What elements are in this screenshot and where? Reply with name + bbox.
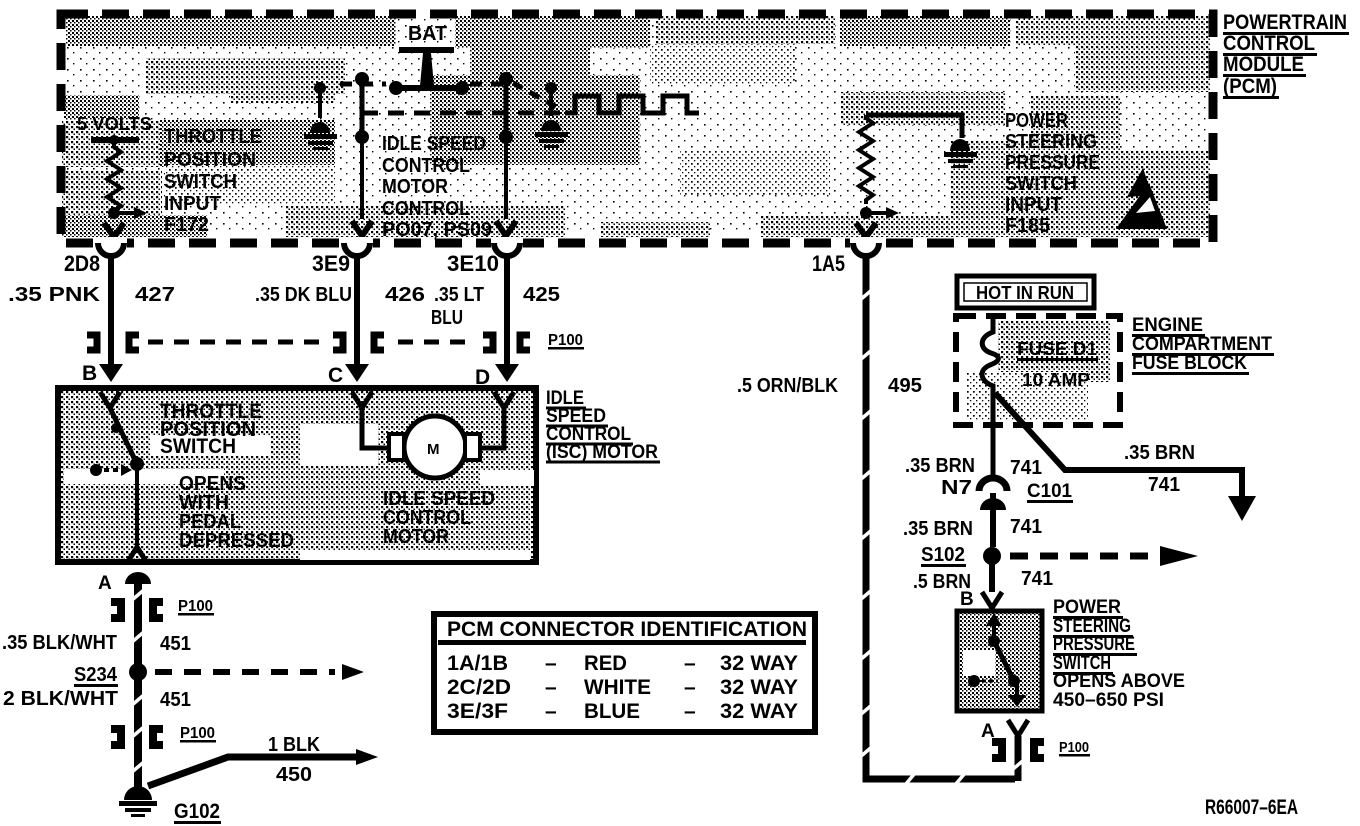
svg-text:CONTROL: CONTROL xyxy=(382,198,470,220)
svg-text:A: A xyxy=(98,573,112,594)
svg-text:10 AMP: 10 AMP xyxy=(1022,370,1090,390)
svg-text:BAT: BAT xyxy=(408,23,447,45)
svg-text:32 WAY: 32 WAY xyxy=(720,652,798,675)
svg-text:FUSE BLOCK: FUSE BLOCK xyxy=(1132,353,1247,374)
svg-text:MODULE: MODULE xyxy=(1223,53,1304,76)
svg-text:427: 427 xyxy=(135,284,175,306)
svg-text:COMPARTMENT: COMPARTMENT xyxy=(1132,334,1272,355)
svg-text:WHITE: WHITE xyxy=(584,676,651,699)
svg-text:–: – xyxy=(545,676,557,699)
svg-text:B: B xyxy=(960,589,974,610)
svg-text:FUSE D1: FUSE D1 xyxy=(1017,339,1097,359)
svg-text:BLU: BLU xyxy=(431,307,463,329)
svg-text:BLUE: BLUE xyxy=(584,700,640,723)
svg-text:.35 BLK/WHT: .35 BLK/WHT xyxy=(2,632,117,654)
svg-text:451: 451 xyxy=(160,689,191,711)
svg-text:1 BLK: 1 BLK xyxy=(268,734,320,756)
svg-text:IDLE SPEED: IDLE SPEED xyxy=(382,133,486,155)
svg-text:(PCM): (PCM) xyxy=(1223,75,1277,98)
svg-text:451: 451 xyxy=(160,633,191,655)
svg-text:STEERING: STEERING xyxy=(1005,131,1097,153)
svg-text:SWITCH: SWITCH xyxy=(1005,173,1077,195)
svg-text:1A/1B: 1A/1B xyxy=(447,652,508,675)
svg-text:B: B xyxy=(82,362,97,385)
svg-text:INPUT: INPUT xyxy=(164,193,221,215)
svg-text:CONTROL: CONTROL xyxy=(1223,32,1315,55)
svg-text:425: 425 xyxy=(523,284,560,306)
svg-text:741: 741 xyxy=(1010,516,1042,538)
svg-text:5 VOLTS: 5 VOLTS xyxy=(77,114,152,134)
svg-text:.35 PNK: .35 PNK xyxy=(8,284,101,306)
svg-text:HOT IN RUN: HOT IN RUN xyxy=(976,283,1074,303)
svg-text:C: C xyxy=(328,364,343,387)
svg-text:–: – xyxy=(684,652,696,675)
svg-text:741: 741 xyxy=(1021,568,1053,590)
svg-text:DEPRESSED: DEPRESSED xyxy=(179,530,294,552)
svg-text:G102: G102 xyxy=(174,800,220,823)
svg-text:.5 ORN/BLK: .5 ORN/BLK xyxy=(737,375,838,397)
svg-text:3E/3F: 3E/3F xyxy=(447,700,508,723)
svg-text:3E9: 3E9 xyxy=(312,251,350,276)
svg-text:P100: P100 xyxy=(180,725,215,742)
svg-text:495: 495 xyxy=(888,375,922,397)
svg-text:2C/2D: 2C/2D xyxy=(447,676,511,699)
svg-text:–: – xyxy=(545,700,557,723)
svg-text:PO07, PS09: PO07, PS09 xyxy=(382,219,492,241)
svg-text:P100: P100 xyxy=(1059,739,1089,756)
svg-text:MOTOR: MOTOR xyxy=(382,176,448,198)
svg-text:450–650 PSI: 450–650 PSI xyxy=(1053,690,1164,711)
svg-text:PRESSURE: PRESSURE xyxy=(1005,152,1100,174)
svg-text:32 WAY: 32 WAY xyxy=(720,700,798,723)
svg-text:R66007–6EA: R66007–6EA xyxy=(1205,796,1298,819)
svg-text:S102: S102 xyxy=(921,544,965,566)
svg-text:F185: F185 xyxy=(1005,215,1050,237)
svg-text:P100: P100 xyxy=(178,598,213,615)
svg-text:S234: S234 xyxy=(74,664,118,686)
svg-text:3E10: 3E10 xyxy=(447,251,499,276)
svg-text:POWERTRAIN: POWERTRAIN xyxy=(1223,11,1347,34)
svg-text:SWITCH: SWITCH xyxy=(164,171,237,193)
svg-text:741: 741 xyxy=(1148,474,1180,496)
svg-text:RED: RED xyxy=(584,652,627,675)
svg-text:M: M xyxy=(427,441,440,458)
svg-text:2D8: 2D8 xyxy=(64,251,100,276)
svg-text:ENGINE: ENGINE xyxy=(1132,315,1203,336)
svg-text:32 WAY: 32 WAY xyxy=(720,676,798,699)
svg-text:INPUT: INPUT xyxy=(1005,194,1062,216)
svg-text:741: 741 xyxy=(1010,457,1042,479)
svg-text:POWER: POWER xyxy=(1005,110,1068,132)
svg-text:2 BLK/WHT: 2 BLK/WHT xyxy=(3,688,118,710)
svg-text:POWER: POWER xyxy=(1053,597,1121,618)
svg-text:–: – xyxy=(684,676,696,699)
svg-text:F172: F172 xyxy=(164,214,209,236)
svg-text:.35 BRN: .35 BRN xyxy=(905,455,975,477)
svg-text:426: 426 xyxy=(385,284,425,306)
svg-text:THROTTLE: THROTTLE xyxy=(164,126,262,148)
svg-text:–: – xyxy=(684,700,696,723)
svg-text:.35 BRN: .35 BRN xyxy=(1124,442,1195,464)
svg-text:MOTOR: MOTOR xyxy=(383,526,449,548)
svg-text:–: – xyxy=(545,652,557,675)
svg-text:SWITCH: SWITCH xyxy=(160,435,236,458)
svg-text:.35 BRN: .35 BRN xyxy=(903,518,973,540)
svg-text:.35 DK BLU: .35 DK BLU xyxy=(255,284,352,306)
svg-text:PCM CONNECTOR IDENTIFICATION: PCM CONNECTOR IDENTIFICATION xyxy=(447,618,807,641)
svg-text:C101: C101 xyxy=(1027,481,1072,502)
svg-text:1A5: 1A5 xyxy=(812,251,845,276)
svg-text:450: 450 xyxy=(276,764,312,786)
svg-text:POSITION: POSITION xyxy=(164,149,256,171)
svg-text:P100: P100 xyxy=(548,332,583,349)
svg-text:N7: N7 xyxy=(941,477,972,499)
svg-text:.35 LT: .35 LT xyxy=(434,284,484,306)
svg-text:CONTROL: CONTROL xyxy=(382,155,470,177)
